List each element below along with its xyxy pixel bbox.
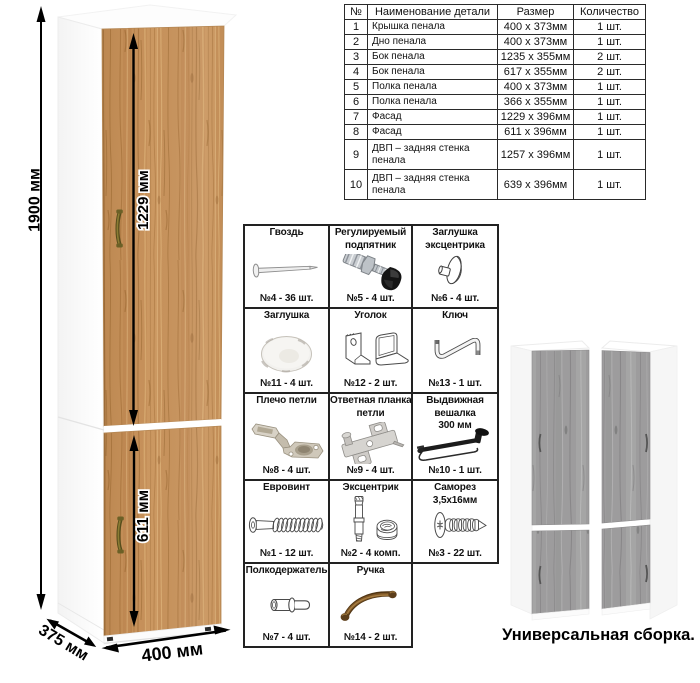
svg-text:611 мм: 611 мм bbox=[135, 490, 152, 542]
svg-text:1229 мм: 1229 мм bbox=[135, 170, 152, 230]
svg-text:1900 мм: 1900 мм bbox=[27, 168, 44, 232]
